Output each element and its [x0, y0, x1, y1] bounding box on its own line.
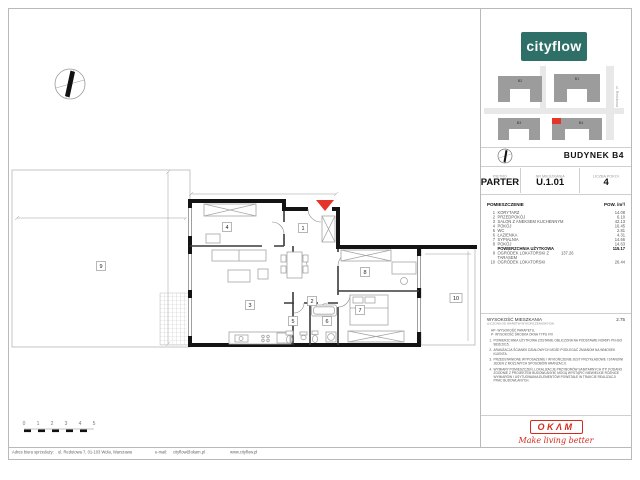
svg-text:1: 1 [301, 226, 304, 232]
unit-number-label: NR MIESZKANIA [536, 174, 565, 179]
height-subnote: (LICZONA OD WARSTW WYKOŃCZENIOWYCH) [487, 323, 625, 326]
wardrobe-room7 [348, 331, 404, 342]
rooms-area-header: POW. /m²/ [604, 202, 625, 207]
entrance-marker-icon [316, 200, 334, 211]
svg-text:3: 3 [65, 421, 68, 427]
desk-room8 [392, 262, 416, 285]
room-badge-1: 1 [299, 224, 308, 233]
room-badge-7: 7 [356, 306, 365, 315]
room-badge-4: 4 [223, 223, 232, 232]
legend: HP- WYSOKOŚĆ PARAPETU, P- WYSOKOŚĆ ŚRODK… [491, 329, 625, 337]
garden-9-area [12, 170, 190, 347]
sofa [212, 250, 266, 261]
unit-location-marker [552, 118, 561, 124]
svg-text:0: 0 [23, 421, 26, 427]
height-label: WYSOKOŚĆ MIESZKANIA [487, 317, 542, 322]
building-title: BUDYNEK B4 [564, 150, 624, 160]
room-count-value: 4 [580, 177, 632, 188]
building-b3-label: B3 [517, 121, 521, 125]
svg-text:5: 5 [93, 421, 96, 427]
room-badge-2: 2 [308, 297, 317, 306]
room-badge-5: 5 [289, 317, 298, 326]
room-badge-10: 10 [450, 294, 462, 303]
note-item: 4.WYMIARY POMIESZCZEŃ, LOKALIZACJĘ PRZYB… [487, 368, 625, 383]
dimension-line-top [189, 192, 338, 196]
website-link: www.cityflow.pl [230, 450, 257, 455]
note-item: 2.ARANŻACJA ŚCIANEK DZIAŁOWYCH MOŻE PODL… [487, 349, 625, 357]
building-b2-label: B2 [518, 79, 522, 83]
mini-compass-icon [496, 147, 514, 165]
armchair [258, 269, 268, 279]
email-value: cityflow@okam.pl [173, 450, 205, 455]
developer-logo-block: OKΛM Make living better [480, 417, 632, 445]
footer-divider [8, 447, 632, 448]
rooms-table: POMIESZCZENIE POW. /m²/ 1KORYTARZ14.08 2… [487, 202, 625, 265]
room-badge-3: 3 [246, 301, 255, 310]
wardrobe-room8 [341, 250, 391, 261]
table-row: 10OGRÓDEK LOKATORSKI26.44 [487, 260, 625, 265]
apartment-height-row: WYSOKOŚĆ MIESZKANIA 2.75 [487, 317, 625, 322]
svg-text:6: 6 [325, 319, 328, 325]
room-badge-8: 8 [361, 268, 370, 277]
room-badge-9: 9 [97, 262, 106, 271]
svg-text:3: 3 [248, 303, 251, 309]
compass-rose-icon [55, 69, 85, 99]
height-value: 2.75 [616, 317, 625, 322]
sheet-footer: Adres biura sprzedaży: ul. Redutowa 7, 0… [12, 450, 632, 460]
kitchen-counter [229, 332, 291, 344]
wardrobe-room4 [204, 204, 256, 216]
unit-number-cell: NR MIESZKANIA U.1.01 [520, 168, 579, 193]
svg-text:4: 4 [225, 225, 228, 231]
legend-line-2: P- WYSOKOŚĆ ŚRODKA OKNA TYPU FIX [491, 333, 625, 337]
coffee-table [228, 270, 250, 282]
svg-text:2: 2 [310, 299, 313, 305]
note-item: 3.PRZEDSTAWIONE WYPOSAŻENIE I WYKOŃCZENI… [487, 358, 625, 366]
svg-text:8: 8 [363, 270, 366, 276]
terrace-grid [160, 293, 190, 345]
sidebar-divider [480, 8, 481, 447]
unit-number-value: U.1.01 [521, 177, 579, 188]
svg-text:5: 5 [291, 319, 294, 325]
room-count-cell: LICZBA POKOI 4 [579, 168, 632, 193]
floor-label: PIĘTRO [493, 174, 507, 179]
svg-text:7: 7 [358, 308, 361, 314]
desk-room4 [206, 234, 220, 243]
dining-set [281, 252, 308, 278]
unit-floor-cell: PIĘTRO PARTER [480, 168, 520, 193]
address-label: Adres biura sprzedaży: [12, 450, 54, 455]
scale-bar: 0 1 2 3 4 5 [23, 421, 96, 432]
address-value: ul. Redutowa 7, 01-103 Wola, Warszawa [58, 450, 132, 455]
table-row: 9OGRÓDEK LOKATORSKI Z TARASEM137.26 [487, 251, 625, 260]
floor-value: PARTER [480, 177, 520, 188]
svg-text:4: 4 [79, 421, 82, 427]
email-label: e-mail: [155, 450, 167, 455]
svg-text:10: 10 [453, 296, 459, 302]
rooms-name-header: POMIESZCZENIE [487, 202, 524, 207]
garden-10-area [421, 247, 475, 345]
svg-text:2: 2 [51, 421, 54, 427]
svg-text:1: 1 [37, 421, 40, 427]
building-b4-label: B4 [579, 121, 583, 125]
street-label: ul. Redutowa [615, 86, 619, 107]
svg-text:9: 9 [99, 264, 102, 270]
wardrobe-corridor [322, 216, 335, 242]
okam-tagline: Make living better [480, 436, 632, 445]
room-count-label: LICZBA POKOI [593, 174, 619, 179]
notes-section: WYSOKOŚĆ MIESZKANIA 2.75 (LICZONA OD WAR… [487, 317, 625, 383]
building-b1-label: B1 [575, 77, 579, 81]
room-badge-6: 6 [323, 317, 332, 326]
site-plan: B2 B1 B3 B4 ul. Redutowa [484, 66, 628, 144]
cityflow-logo: cityflow [521, 32, 587, 61]
info-sidebar: cityflow B2 B1 B3 B4 ul. Redutowa BUDYNE… [480, 9, 632, 447]
unit-info-table: PIĘTRO PARTER NR MIESZKANIA U.1.01 LICZB… [480, 168, 632, 193]
note-item: 1.POWIERZCHNIA UŻYTKOWA ZOSTANIE OBLICZO… [487, 339, 625, 347]
rooms-table-header: POMIESZCZENIE POW. /m²/ [487, 202, 625, 207]
okam-logo: OKΛM [530, 420, 583, 434]
